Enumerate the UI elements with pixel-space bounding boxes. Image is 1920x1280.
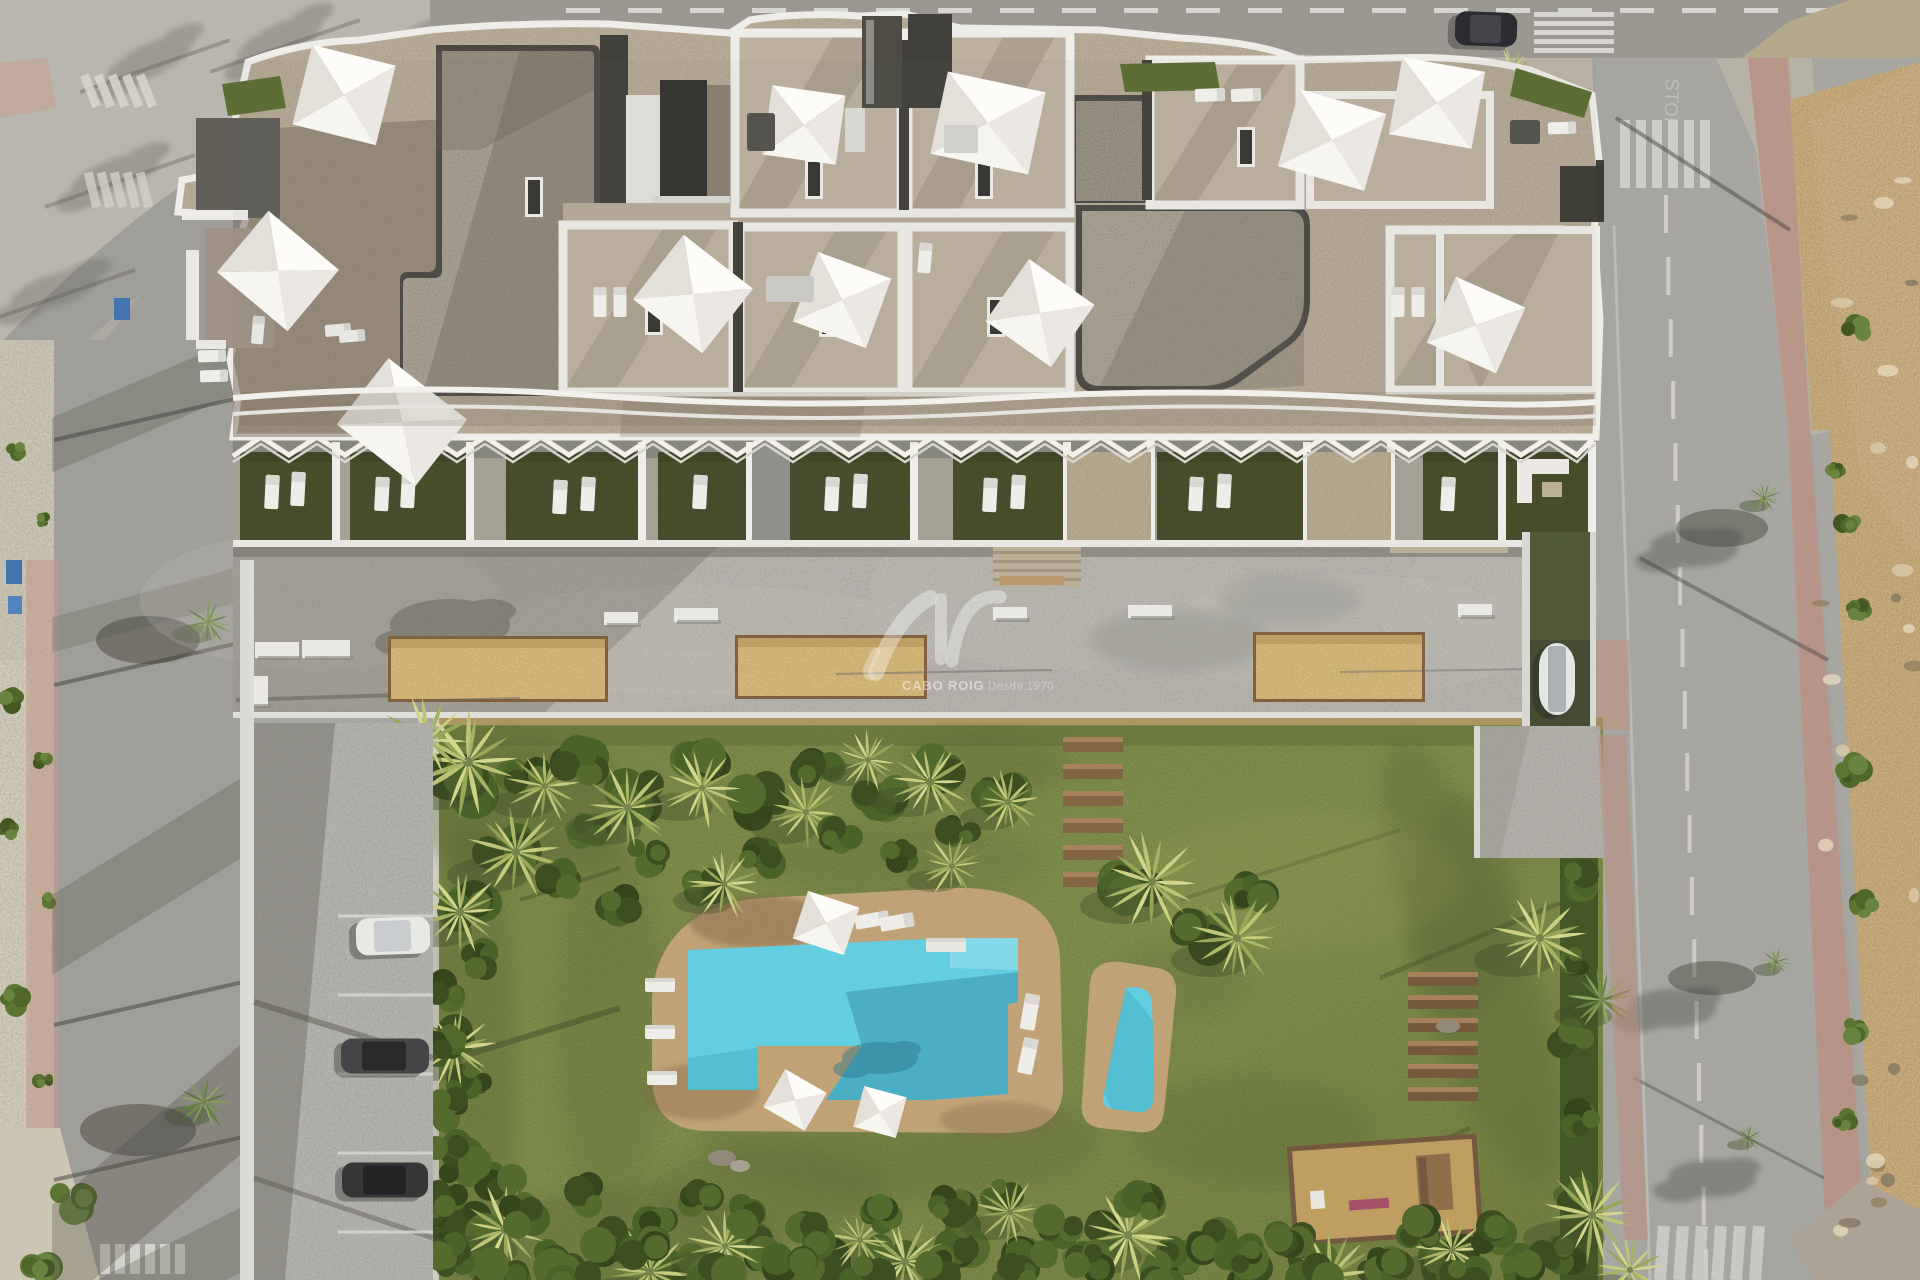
svg-text:Desde 1970: Desde 1970 — [988, 681, 1054, 693]
svg-text:CABO ROIG: CABO ROIG — [902, 678, 984, 693]
